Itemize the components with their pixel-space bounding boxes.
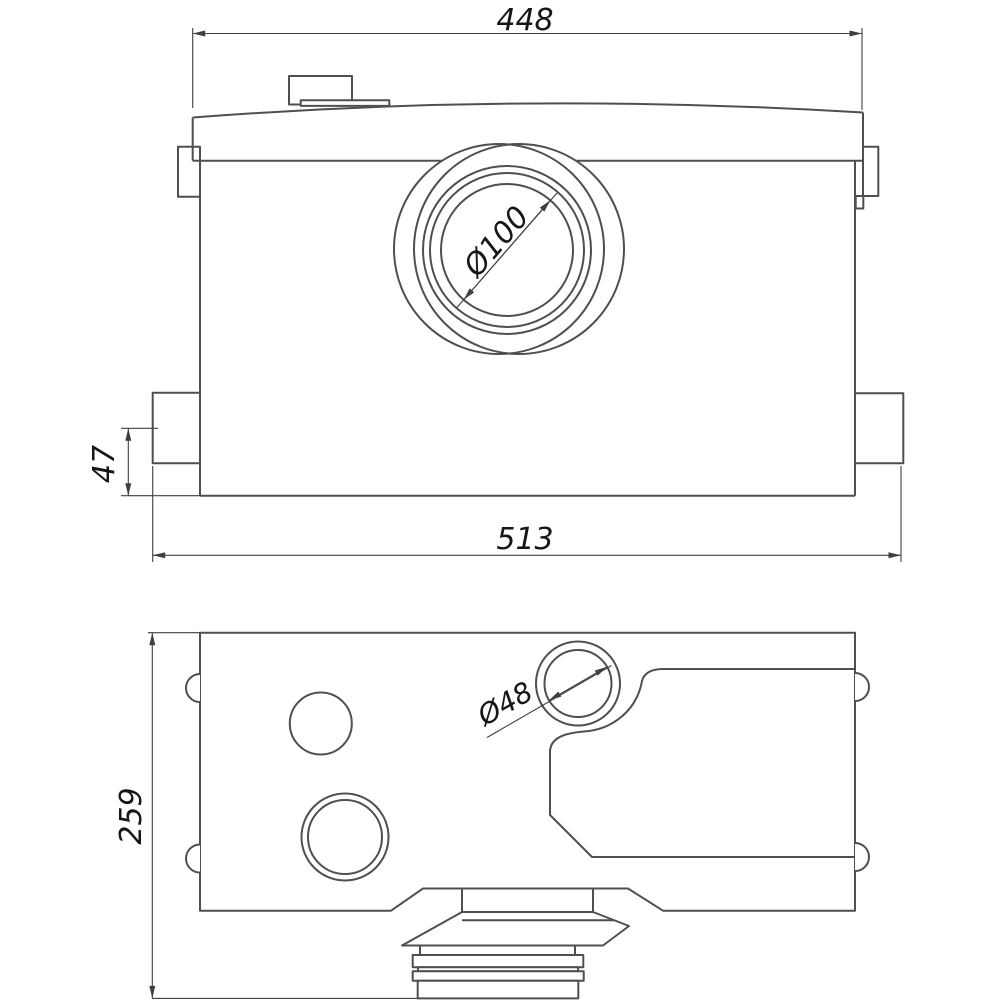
lid-knob-base (301, 100, 390, 106)
spigot-rib-1 (413, 955, 584, 967)
dim-label-overall-width: 513 (496, 522, 553, 557)
dim-label-inlet-center-offset: 47 (87, 445, 122, 483)
ringed-inlet (302, 794, 389, 881)
plan-body-outline (200, 633, 855, 911)
spigot-collar (420, 946, 575, 956)
dim-label-top-width: 448 (496, 3, 553, 38)
ringed-inlet-outer (302, 794, 389, 881)
technical-drawing: Ø100 448 47 513 (0, 0, 1000, 1000)
small-inlet-circle (290, 693, 352, 755)
outlet-mask (414, 144, 624, 354)
spigot-rib-2 (413, 971, 584, 980)
spigot-pipe-end (418, 981, 579, 999)
dim-label-depth: 259 (114, 787, 149, 844)
